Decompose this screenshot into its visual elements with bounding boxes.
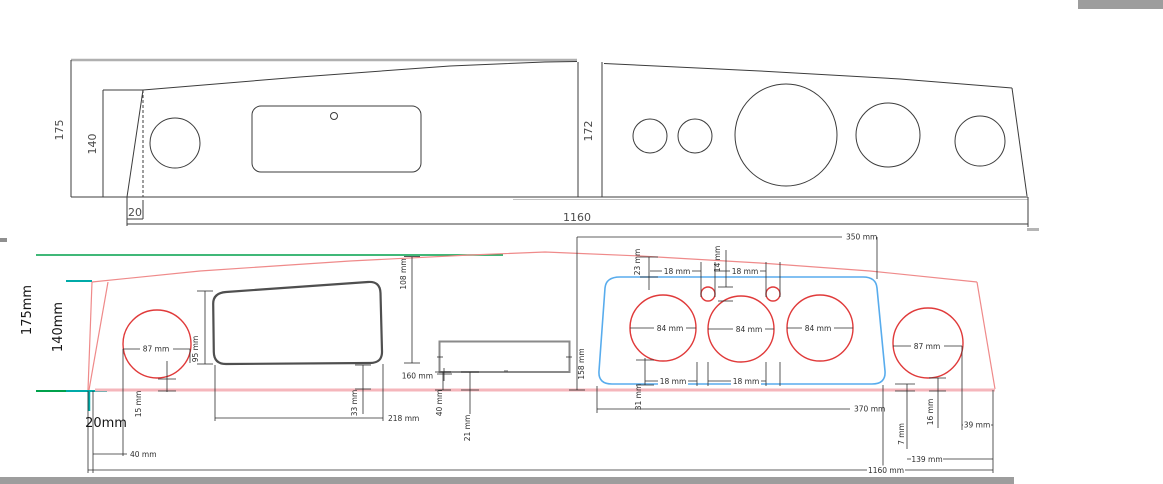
dim-1160-label: 1160 [563,211,591,224]
cluster-cutout-front [213,282,382,364]
dim-84mm-3-label: 84 mm [805,324,832,333]
dim-23mm-label: 23 mm [633,249,642,276]
radio-slot-marks [437,357,572,371]
large-gauge-hole [735,84,837,186]
small-gauge-hole-2 [678,119,712,153]
right-bevel-line [1012,88,1027,196]
dim-140mm-label: 140mm [51,302,66,352]
left-edge-gray-dash [0,238,7,242]
dim-16mm-label: 16 mm [926,399,935,426]
dim-14mm-label: 14 mm [713,246,722,273]
dim-175mm-label: 175mm [20,285,35,335]
dim-40mm-bottom-label: 40 mm [130,450,157,459]
left-bevel-line [127,90,143,197]
dim-31mm-label: 31 mm [634,384,643,411]
dim-175-label: 175 [53,120,66,141]
right-gauge-hole [955,116,1005,166]
dim-7mm-label: 7 mm [897,423,906,445]
dim-158mm-label: 158 mm [577,348,586,379]
cluster-cutout [252,106,421,172]
dim-21mm-label: 21 mm [463,415,472,442]
gauge-hole-left [150,118,200,168]
dim-18mm-botleft-label: 18 mm [660,377,687,386]
small-gauge-circle-1 [701,287,715,301]
small-gauge-hole-1 [633,119,667,153]
dim-15mm-label: 15 mm [134,391,143,418]
dim-87mm-left-label: 87 mm [143,345,170,354]
dim-140-label: 140 [86,134,99,155]
top-view: 175 140 172 20 1160 [53,60,1028,227]
dim-40mm-blue-label: 40 mm [435,390,444,417]
dim-20mm-label: 20mm [85,416,127,431]
dim-87mm-right-label: 87 mm [914,342,941,351]
dashboard-technical-drawing: 175 140 172 20 1160 [0,0,1163,484]
dim-39mm-label: 39 mm [964,421,991,430]
panel-top-edge-left [143,62,577,91]
dim-18mm-topleft-label: 18 mm [664,267,691,276]
front-view: 87 mm 15 mm 40 mm 95 mm 108 mm 218 mm 33… [20,233,995,476]
panel-top-edge-right [604,64,1012,89]
dim-172-label: 172 [582,121,595,142]
dim-218mm-label: 218 mm [388,414,419,423]
dim-160mm-label: 160 mm [402,372,433,381]
dim-139mm-label: 139 mm [911,455,942,464]
radio-slot [440,342,570,373]
dim-350mm-label: 350 mm [846,233,877,242]
dim-33mm-label: 33 mm [350,390,359,417]
dim-20-label: 20 [128,206,142,219]
dim-84mm-2-label: 84 mm [736,325,763,334]
dim-18mm-topright-label: 18 mm [732,267,759,276]
panel-outline [88,252,995,390]
dimension-lines [88,237,993,473]
dashboard-drawing-page: 175 140 172 20 1160 [0,0,1163,484]
dim-108mm-label: 108 mm [399,258,408,289]
dim-1160mm-label: 1160 mm [868,466,904,475]
dim-370mm-label: 370 mm [854,405,885,414]
right-gray-dash [1027,228,1039,231]
medium-gauge-hole [856,103,920,167]
panel-right-bevel [977,282,995,389]
dim-84mm-1-label: 84 mm [657,324,684,333]
cluster-screw-hole [331,113,338,120]
dim-95mm-label: 95 mm [191,336,200,363]
top-right-gray-bar [1078,0,1163,9]
dim-18mm-botright-label: 18 mm [733,377,760,386]
small-gauge-circle-2 [766,287,780,301]
horizontal-scrollbar[interactable] [0,477,1014,484]
